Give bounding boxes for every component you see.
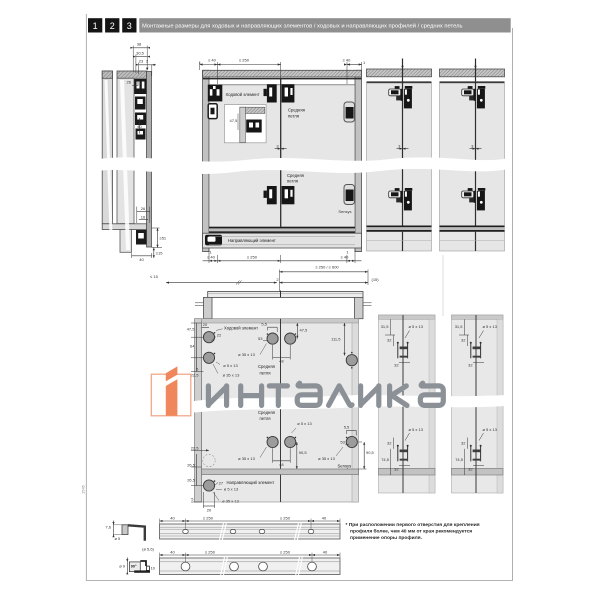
svg-text:Ходовой элемент: Ходовой элемент (226, 92, 260, 97)
svg-text:≤ 40: ≤ 40 (341, 255, 350, 260)
svg-text:* При расположении первого отв: * При расположении первого отверстия для… (346, 522, 480, 528)
svg-text:петля: петля (260, 416, 271, 421)
svg-text:40: 40 (170, 550, 175, 555)
svg-text:Средняя: Средняя (287, 173, 304, 178)
svg-text:профиля более, чем 40 мм от кр: профиля более, чем 40 мм от края рекомен… (350, 527, 472, 534)
svg-text:23: 23 (139, 59, 144, 64)
svg-text:петля: петля (260, 370, 271, 375)
svg-text:31,5: 31,5 (455, 324, 464, 329)
svg-text:32: 32 (387, 338, 392, 343)
svg-text:ø 5 x 13: ø 5 x 13 (297, 421, 312, 426)
svg-text:петля: петля (288, 113, 299, 118)
svg-text:32: 32 (461, 441, 466, 446)
svg-text:90,5: 90,5 (299, 450, 308, 455)
svg-text:26: 26 (127, 80, 132, 85)
svg-text:5,5: 5,5 (261, 321, 267, 326)
svg-text:ø 5 x 13: ø 5 x 13 (483, 427, 498, 432)
svg-text:применение опоры профиля.: применение опоры профиля. (350, 534, 423, 541)
svg-text:ø 5 x 13: ø 5 x 13 (483, 324, 498, 329)
svg-text:ø 35 x 13: ø 35 x 13 (238, 352, 255, 357)
svg-text:20: 20 (207, 507, 212, 512)
svg-text:≤ 15: ≤ 15 (150, 274, 159, 279)
svg-text:Средняя: Средняя (258, 410, 275, 415)
svg-text:26: 26 (141, 206, 146, 211)
svg-text:ø 5: ø 5 (115, 536, 122, 541)
svg-text:47,5: 47,5 (187, 327, 196, 332)
svg-text:20: 20 (203, 322, 208, 327)
svg-text:ø 5 x 13: ø 5 x 13 (409, 427, 424, 432)
svg-text:32: 32 (468, 466, 473, 471)
svg-text:40: 40 (139, 257, 144, 262)
svg-text:1545: 1545 (81, 484, 86, 494)
svg-text:90°: 90° (131, 565, 137, 569)
svg-text:53: 53 (258, 336, 263, 341)
svg-text:111,5: 111,5 (331, 337, 341, 342)
svg-text:≤ 250: ≤ 250 (203, 516, 214, 521)
svg-text:40: 40 (170, 516, 175, 521)
svg-text:26,5: 26,5 (187, 477, 196, 482)
svg-text:≤ 250: ≤ 250 (247, 255, 258, 260)
svg-text:47,5: 47,5 (300, 328, 309, 333)
svg-text:петля: петля (287, 179, 298, 184)
svg-text:(ø 5,6): (ø 5,6) (142, 546, 154, 551)
svg-text:Средняя: Средняя (288, 108, 305, 113)
svg-text:32: 32 (387, 441, 392, 446)
svg-text:2: 2 (110, 21, 115, 31)
svg-text:32: 32 (394, 363, 399, 368)
svg-text:74,5: 74,5 (381, 457, 390, 462)
svg-text:40: 40 (322, 516, 327, 521)
svg-text:ø 35 x 13: ø 35 x 13 (238, 456, 255, 461)
svg-text:32: 32 (468, 363, 473, 368)
svg-text:27: 27 (219, 480, 224, 485)
svg-text:Sensys: Sensys (338, 209, 351, 214)
svg-text:90,5: 90,5 (366, 450, 375, 455)
svg-text:22,5: 22,5 (191, 373, 200, 378)
svg-text:1: 1 (93, 21, 98, 31)
svg-text:≤ 250: ≤ 250 (239, 57, 250, 62)
svg-text:74,5: 74,5 (455, 457, 464, 462)
svg-text:31,5: 31,5 (381, 324, 390, 329)
svg-text:Средняя: Средняя (258, 364, 275, 369)
svg-text:Направляющий элемент: Направляющий элемент (227, 480, 275, 485)
svg-text:ø 35 x 13: ø 35 x 13 (223, 372, 240, 377)
svg-text:22: 22 (217, 332, 222, 337)
svg-text:ø 5 x 13: ø 5 x 13 (224, 487, 239, 492)
svg-text:40: 40 (137, 124, 142, 129)
svg-text:≤ 40: ≤ 40 (207, 255, 216, 260)
svg-text:≤ 40: ≤ 40 (208, 57, 217, 62)
svg-text:≤ 250: ≤ 250 (280, 516, 291, 521)
svg-text:ø 9: ø 9 (119, 564, 126, 569)
svg-text:38: 38 (137, 41, 142, 46)
svg-text:10: 10 (151, 566, 155, 570)
svg-text:48: 48 (279, 359, 284, 364)
svg-text:64: 64 (190, 344, 195, 349)
svg-text:≤ 250: ≤ 250 (205, 550, 216, 555)
svg-text:26,5: 26,5 (187, 462, 196, 467)
svg-text:≥15: ≥15 (156, 250, 163, 255)
svg-text:ø 5 x 13: ø 5 x 13 (409, 324, 424, 329)
svg-text:ø 35 x 13: ø 35 x 13 (222, 499, 239, 504)
svg-text:Ходовой элемент: Ходовой элемент (224, 326, 258, 331)
svg-text:≤ 250: ≤ 250 (280, 550, 291, 555)
svg-text:Направляющий элемент: Направляющий элемент (228, 238, 276, 243)
svg-text:47,5: 47,5 (230, 118, 239, 123)
svg-text:Монтажные размеры для ходовых: Монтажные размеры для ходовых и направля… (142, 22, 463, 29)
svg-text:53: 53 (340, 439, 345, 444)
svg-text:(15): (15) (372, 277, 380, 282)
svg-text:30,5: 30,5 (136, 51, 145, 56)
svg-text:≥ 250 / ≤ 600: ≥ 250 / ≤ 600 (315, 265, 339, 270)
svg-text:≤ 40: ≤ 40 (343, 57, 352, 62)
svg-text:ø 35 x 13: ø 35 x 13 (318, 456, 335, 461)
svg-text:48: 48 (279, 462, 284, 467)
svg-text:5,5: 5,5 (344, 424, 350, 429)
svg-text:16: 16 (141, 214, 146, 219)
svg-text:32: 32 (394, 466, 399, 471)
svg-text:32: 32 (461, 338, 466, 343)
svg-text:≥51: ≥51 (160, 236, 167, 241)
svg-text:40: 40 (323, 550, 328, 555)
svg-text:7,6: 7,6 (105, 525, 111, 530)
svg-text:ø 5 x 13: ø 5 x 13 (223, 363, 238, 368)
svg-text:22,5: 22,5 (191, 445, 200, 450)
svg-text:Sensys: Sensys (338, 463, 352, 468)
svg-text:3: 3 (127, 21, 132, 31)
